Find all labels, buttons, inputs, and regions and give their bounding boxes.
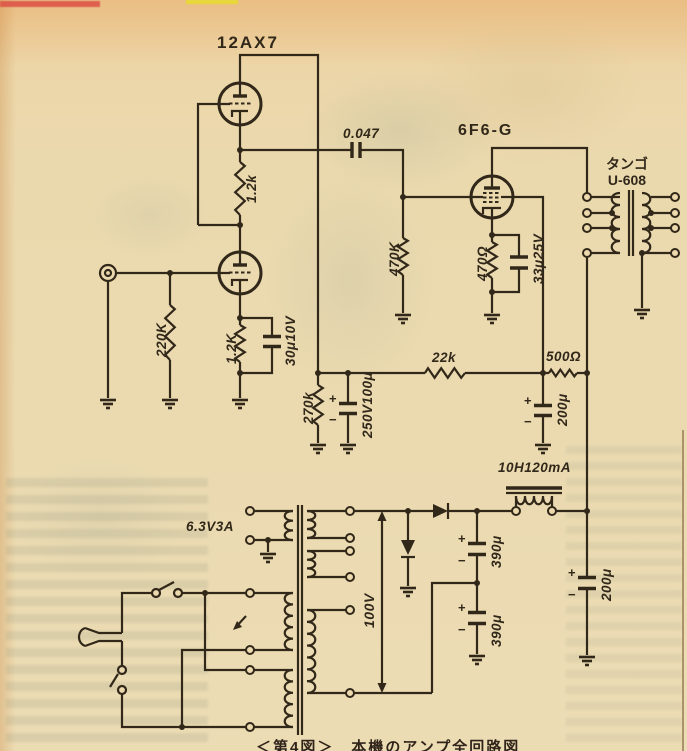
pt-terminal xyxy=(346,573,354,581)
opt-terminal xyxy=(671,249,679,257)
minus-sign: − xyxy=(568,587,576,602)
opt-terminal xyxy=(671,224,679,232)
mains-input xyxy=(79,582,246,727)
heater-coil xyxy=(285,511,293,540)
junction-dot xyxy=(400,194,406,200)
ground-icon xyxy=(579,657,595,665)
opt-terminal xyxy=(583,209,591,217)
junction-dot xyxy=(609,210,615,216)
ground-icon xyxy=(260,554,276,562)
heater-leads xyxy=(254,511,293,540)
choke-terminal xyxy=(548,507,556,515)
ground-icon xyxy=(232,400,248,408)
resistor-grid2-label: 470K xyxy=(387,241,402,277)
junction-dot xyxy=(639,250,645,256)
junction-dot xyxy=(540,370,546,376)
figure-caption: ＜第4図＞ 本機のアンプ全回路図 xyxy=(256,740,676,751)
primary-parallel-link-2 xyxy=(182,650,246,727)
power-supply: 10H120mA + − 390μ + xyxy=(354,460,587,693)
opt-secondary-coil xyxy=(642,193,650,253)
arrow-down-icon xyxy=(378,683,387,693)
fuse-contact xyxy=(118,666,126,674)
primary-coil-2 xyxy=(285,670,293,727)
mains-hot-wire xyxy=(122,593,152,633)
opt-terminal xyxy=(671,209,679,217)
primary-coil-1 xyxy=(285,593,293,650)
pt-terminal xyxy=(246,536,254,544)
magazine-page: 12AX7 1.2k xyxy=(0,0,687,751)
junction-dot xyxy=(474,508,480,514)
resistor-dropper2 xyxy=(425,368,465,378)
switch-lever-icon xyxy=(159,582,174,590)
stage1-12ax7: 12AX7 1.2k xyxy=(100,33,403,408)
ground-icon xyxy=(310,445,326,453)
junction-dot xyxy=(179,724,185,730)
junction-dot xyxy=(237,315,243,321)
opt-model-label: U-608 xyxy=(608,172,646,188)
primary-parallel-link-1 xyxy=(205,593,246,670)
coupling-out-wire xyxy=(360,150,403,238)
tube-v2-label: 6F6-G xyxy=(458,122,513,139)
junction-dot xyxy=(489,289,495,295)
heater-winding-label: 6.3V3A xyxy=(186,519,234,534)
secondary-coil-2 xyxy=(307,551,315,577)
plus-sign: + xyxy=(524,393,532,408)
pt-terminal xyxy=(346,547,354,555)
junction-dot xyxy=(265,537,271,543)
ground-icon xyxy=(100,400,116,408)
diode-series-icon xyxy=(433,504,448,518)
neutral-bottom-wire xyxy=(122,694,246,727)
switch-contact xyxy=(174,589,182,597)
cap-cathode2-label: 33μ25V xyxy=(531,233,546,284)
minus-sign: − xyxy=(458,553,466,568)
ground-icon xyxy=(535,445,551,453)
cap-b1-label: 250V100μ xyxy=(360,372,375,439)
resistor-dropper1-label: 270k xyxy=(301,391,316,425)
junction-dot xyxy=(167,270,173,276)
secondary-coil-1 xyxy=(307,511,315,538)
pt-terminal xyxy=(246,723,254,731)
cap-main-label: 200μ xyxy=(599,568,614,602)
choke-label: 10H120mA xyxy=(498,460,571,475)
plus-sign: + xyxy=(329,391,337,406)
cap-doubler2-label: 390μ xyxy=(489,614,504,647)
ground-icon xyxy=(484,315,500,323)
junction-dot xyxy=(489,232,495,238)
junction-dot xyxy=(609,225,615,231)
junction-dot xyxy=(648,225,654,231)
pt-terminal xyxy=(246,666,254,674)
opt-terminal xyxy=(583,193,591,201)
input-jack-icon xyxy=(100,265,116,281)
v2-plate-wire xyxy=(492,148,587,193)
pt-terminal xyxy=(246,646,254,654)
opt-brand-label: タンゴ xyxy=(606,156,648,172)
fuse-contact xyxy=(118,686,126,694)
switch-contact xyxy=(152,589,160,597)
junction-dot xyxy=(315,370,321,376)
minus-sign: − xyxy=(458,622,466,637)
junction-dot xyxy=(474,580,480,586)
pt-terminal xyxy=(246,589,254,597)
resistor-dropper2-label: 22k xyxy=(431,350,457,365)
cap-cathode1-label: 30μ10V xyxy=(283,315,298,366)
ground-icon xyxy=(162,400,178,408)
minus-sign: − xyxy=(329,412,337,427)
junction-dot xyxy=(584,370,590,376)
junction-dot xyxy=(345,370,351,376)
resistor-dropper3-label: 500Ω xyxy=(546,349,581,364)
opt-primary-coil xyxy=(612,193,620,253)
ground-icon xyxy=(395,315,411,323)
junction-dot xyxy=(405,508,411,514)
secondary-leads xyxy=(307,511,346,693)
output-transformer: タンゴ U-608 xyxy=(583,156,679,318)
choke-coil xyxy=(516,496,552,504)
pt-terminal xyxy=(346,534,354,542)
ground-icon xyxy=(340,445,356,453)
minus-sign: − xyxy=(524,414,532,429)
opt-terminal xyxy=(671,193,679,201)
ground-icon xyxy=(400,588,416,596)
pt-terminal xyxy=(346,689,354,697)
junction-dot xyxy=(584,508,590,514)
arrow-up-icon xyxy=(378,511,387,521)
pt-terminal xyxy=(246,507,254,515)
plus-sign: + xyxy=(458,531,466,546)
junction-dot xyxy=(237,370,243,376)
resistor-cathode2-label: 470Ω xyxy=(475,246,490,282)
mains-voltage-label: 100V xyxy=(361,592,377,628)
cap-doubler1-label: 390μ xyxy=(489,535,504,568)
ground-icon xyxy=(469,656,485,664)
junction-dot xyxy=(202,590,208,596)
junction-dot xyxy=(648,210,654,216)
resistor-dropper3 xyxy=(549,370,577,377)
pt-terminal xyxy=(346,606,354,614)
resistor-srpp-label: 1.2k xyxy=(244,174,259,203)
diode-shunt-icon xyxy=(401,540,415,555)
ground-icon xyxy=(634,310,650,318)
v1a-grid-return-wire xyxy=(198,104,230,225)
opt-terminal xyxy=(583,249,591,257)
plus-sign: + xyxy=(568,565,576,580)
pt-terminal xyxy=(346,507,354,515)
cap-screen-label: 200μ xyxy=(555,393,570,427)
resistor-cathode1-label: 1.2K xyxy=(224,333,239,364)
choke-terminal xyxy=(512,507,520,515)
junction-dot xyxy=(237,222,243,228)
opt-terminal xyxy=(583,224,591,232)
fuse-lever-icon xyxy=(110,674,118,687)
plug-body-icon xyxy=(79,628,85,646)
tube-v1-label: 12AX7 xyxy=(217,33,279,52)
secondary-coil-3 xyxy=(307,610,315,693)
cap-coupling-label: 0.047 xyxy=(343,126,380,141)
plug-cord-wires xyxy=(85,628,122,646)
junction-dot xyxy=(237,147,243,153)
plus-sign: + xyxy=(458,600,466,615)
input-jack-tip xyxy=(105,270,111,276)
resistor-grid1-label: 220K xyxy=(154,322,169,358)
v1a-plate-bplus-wire xyxy=(240,55,318,373)
amplifier-schematic: 12AX7 1.2k xyxy=(0,0,687,751)
